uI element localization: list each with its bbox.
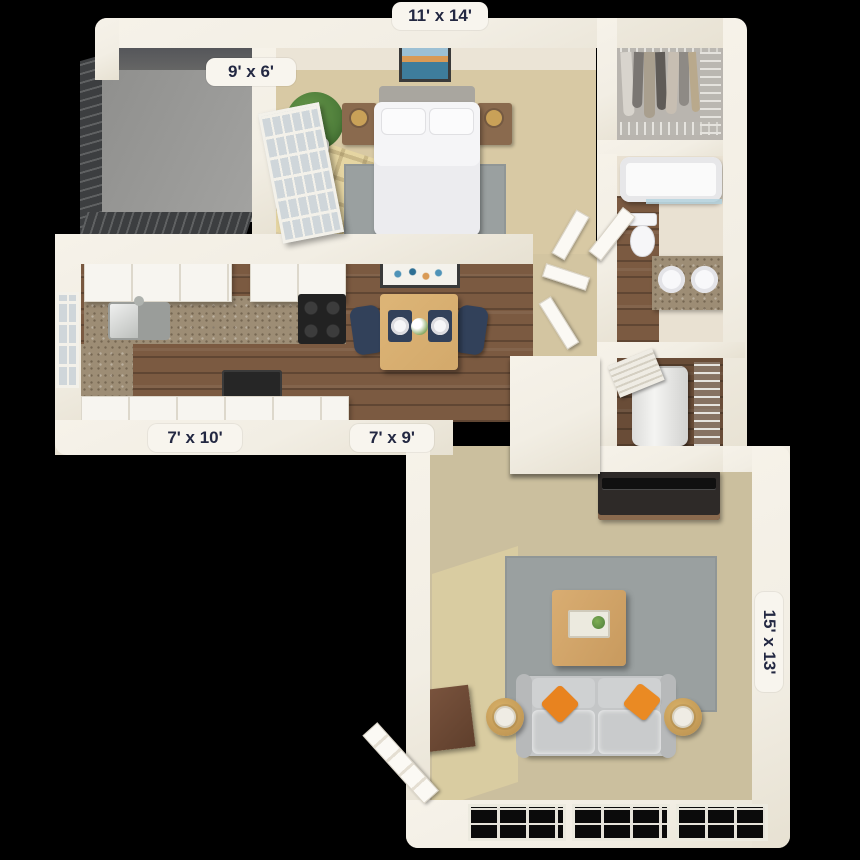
toilet-bowl — [630, 225, 655, 257]
shower-glass-panel — [646, 199, 722, 204]
closet-wire-rack-right — [700, 42, 721, 134]
floor-lamp-left — [494, 706, 516, 728]
tray-plant — [592, 616, 605, 629]
laundry-wire-shelf — [694, 362, 720, 446]
dimension-label-dining: 7' x 9' — [350, 424, 434, 452]
floorplan-3d-render: 11' x 14' 9' x 6' 7' x 10' 7' x 9' 15' x… — [0, 0, 860, 860]
dinner-plate-right — [431, 317, 449, 335]
patio-floor — [100, 70, 256, 222]
kitchen-range — [298, 294, 346, 344]
tv-screen — [602, 478, 716, 489]
patio-railing-left — [80, 55, 102, 237]
dimension-label-bedroom: 11' x 14' — [392, 2, 488, 30]
dining-artwork — [380, 260, 460, 288]
bed-pillow-left — [381, 108, 426, 135]
living-window-2 — [572, 804, 670, 841]
vanity-sink-right — [691, 266, 718, 293]
kitchen-upper-cabinets-left — [84, 258, 232, 302]
dinner-plate-left — [391, 317, 409, 335]
table-lamp-left — [351, 110, 367, 126]
wall-topleft-stub — [95, 18, 119, 80]
table-centerpiece — [411, 318, 428, 335]
dimension-label-patio: 9' x 6' — [206, 58, 296, 86]
dimension-label-kitchen: 7' x 10' — [148, 424, 242, 452]
bathtub — [620, 157, 722, 202]
bed-pillow-right — [429, 108, 474, 135]
wall-closet-left — [597, 18, 617, 154]
kitchen-window — [56, 292, 79, 388]
closet-hanging-clothes — [622, 52, 698, 122]
patio-railing-bottom — [80, 212, 253, 234]
dimension-label-living: 15' x 13' — [755, 592, 783, 692]
clothes-item — [632, 52, 644, 108]
kitchen-faucet — [134, 296, 144, 306]
living-window-3 — [676, 804, 768, 841]
clothes-item — [644, 52, 655, 118]
sofa-seat-cushion-right — [598, 710, 661, 754]
wall-bath-bottom — [597, 342, 745, 358]
wall-right-upper — [723, 18, 747, 470]
floor-lamp-right — [672, 706, 694, 728]
table-lamp-right — [486, 110, 502, 126]
clothes-item — [665, 52, 679, 114]
kitchen-sink — [108, 302, 170, 340]
sofa — [516, 674, 676, 758]
wall-stub-dining-living — [510, 356, 600, 474]
living-window-1 — [468, 804, 566, 841]
vanity-sink-left — [658, 266, 685, 293]
